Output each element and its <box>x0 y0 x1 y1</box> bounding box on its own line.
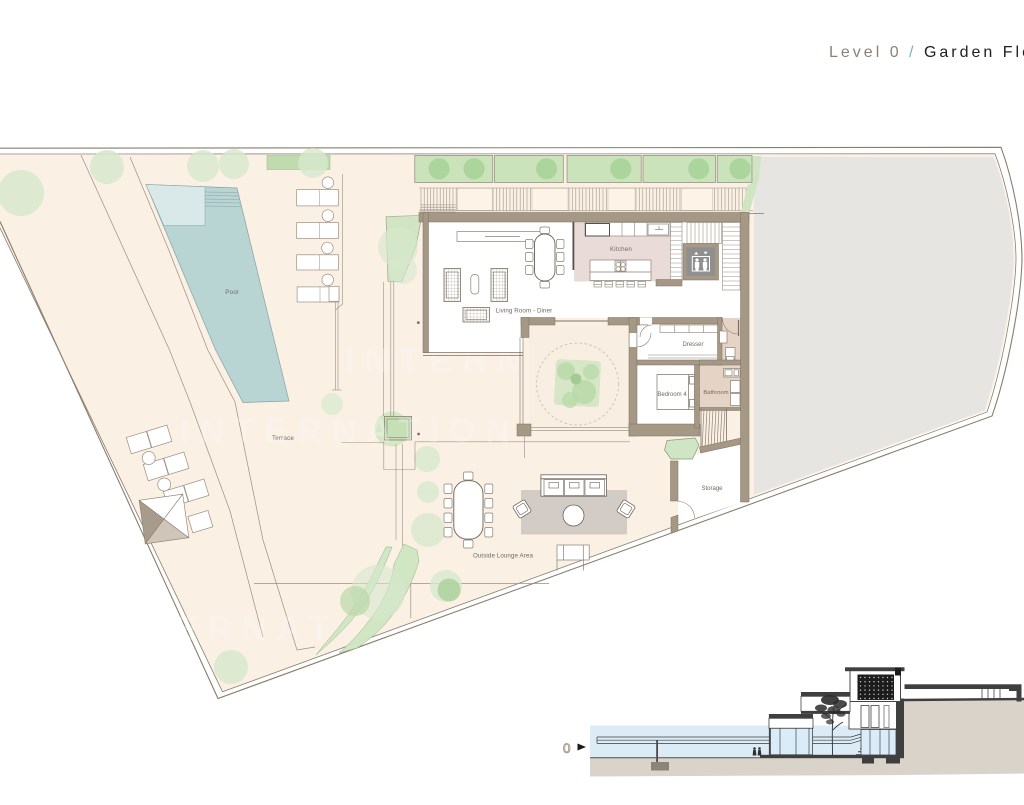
svg-text:Level 0 / Garden Flo: Level 0 / Garden Flo <box>829 44 1024 61</box>
svg-text:Storage: Storage <box>701 486 723 492</box>
svg-text:Bathroom: Bathroom <box>703 390 728 396</box>
svg-text:Living Room - Diner: Living Room - Diner <box>496 308 553 315</box>
svg-text:INTERNATION: INTERNATION <box>180 412 520 450</box>
svg-text:Pool: Pool <box>225 289 239 296</box>
svg-text:Dresser: Dresser <box>682 342 703 348</box>
svg-text:0: 0 <box>563 741 571 756</box>
svg-text:Bedroom 4: Bedroom 4 <box>657 392 687 398</box>
svg-text:Outside Lounge Area: Outside Lounge Area <box>473 553 533 560</box>
svg-text:INTERNAT: INTERNAT <box>90 610 339 648</box>
svg-text:Kitchen: Kitchen <box>610 246 632 253</box>
